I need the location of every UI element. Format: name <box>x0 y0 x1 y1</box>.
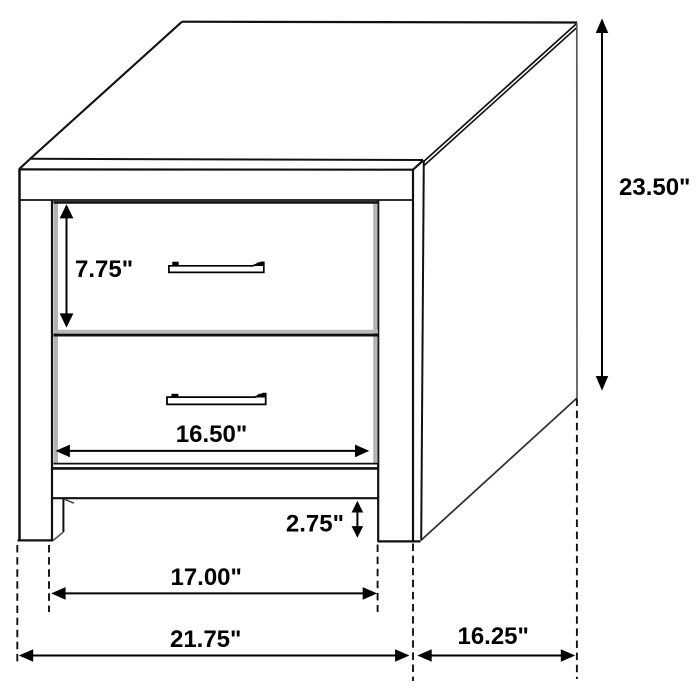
svg-text:21.75": 21.75" <box>170 626 241 653</box>
svg-text:16.25": 16.25" <box>457 623 528 650</box>
svg-text:17.00": 17.00" <box>170 564 241 591</box>
svg-text:2.75": 2.75" <box>286 511 344 538</box>
svg-text:7.75": 7.75" <box>75 256 133 283</box>
svg-text:23.50": 23.50" <box>619 174 690 201</box>
svg-text:16.50": 16.50" <box>176 421 247 448</box>
